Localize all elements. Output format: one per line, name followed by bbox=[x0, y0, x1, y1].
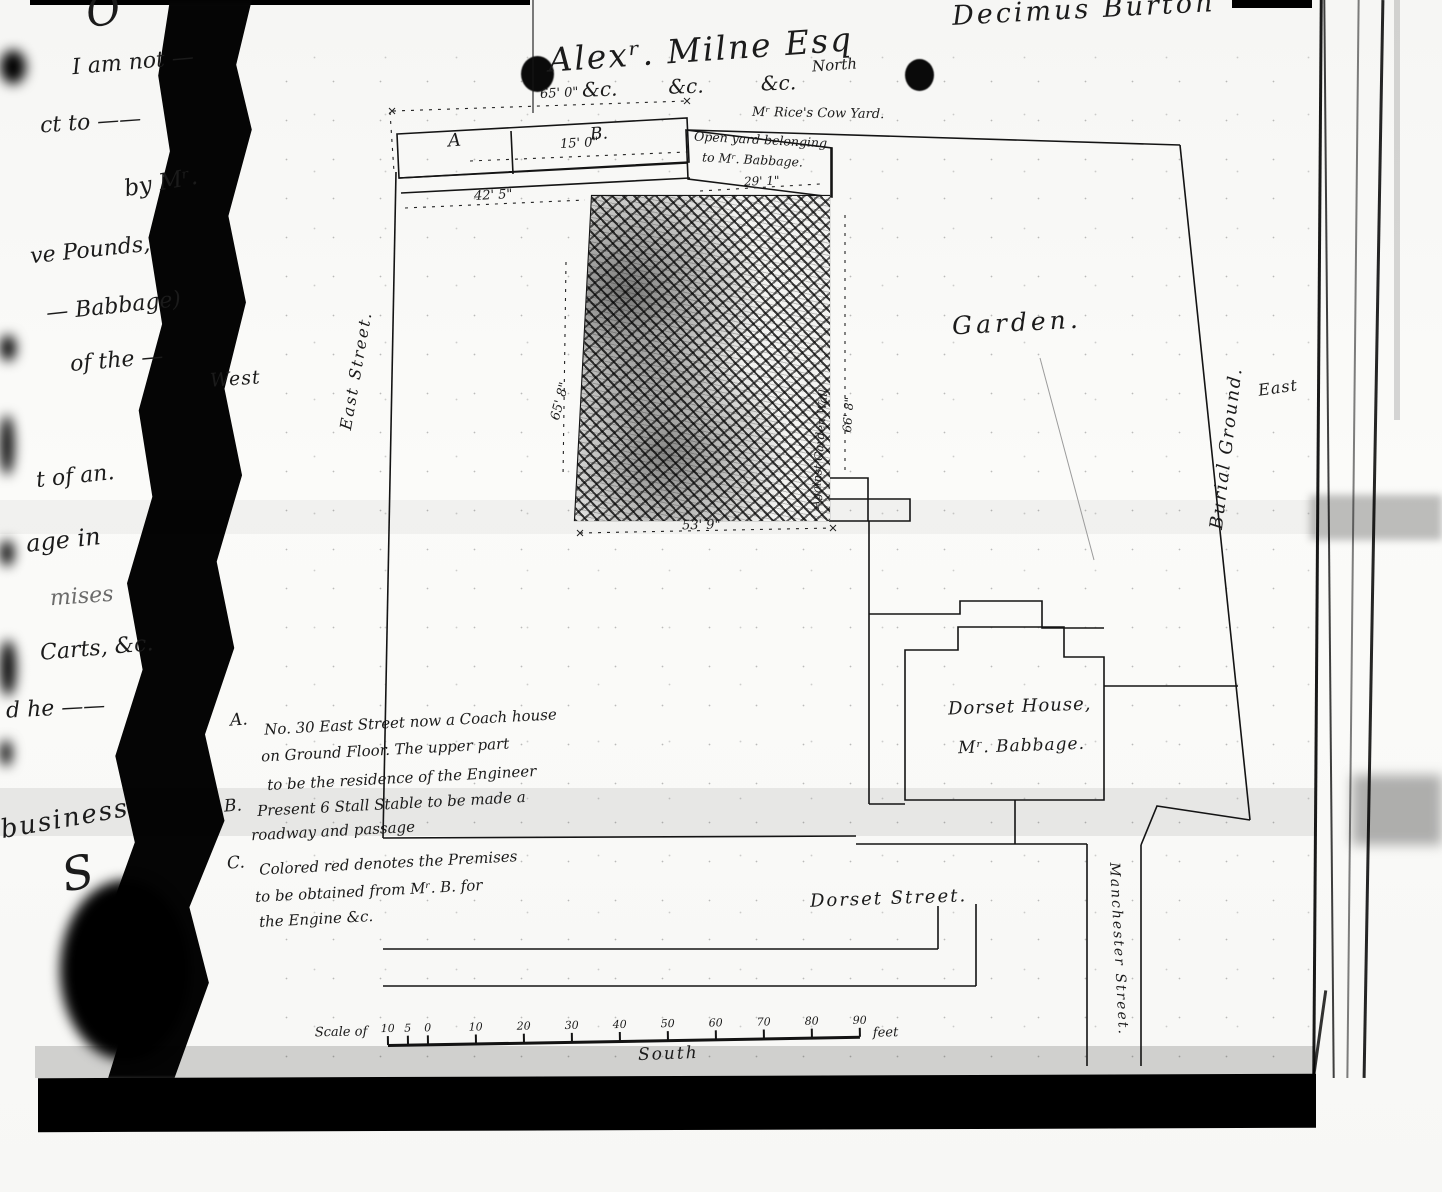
dim-stable-width-line bbox=[470, 152, 688, 161]
dorset-street-curbs bbox=[383, 904, 976, 986]
step-boxes bbox=[829, 478, 910, 521]
scale-tick-label: 60 bbox=[709, 1016, 723, 1029]
scale-tick-mark bbox=[475, 1035, 477, 1044]
scale-tick: 10 bbox=[379, 1022, 397, 1045]
scale-tick: 30 bbox=[563, 1019, 581, 1042]
letter-fragment: mises bbox=[49, 582, 114, 611]
scale-tick-mark bbox=[667, 1031, 669, 1040]
scale-tick-mark bbox=[763, 1029, 765, 1038]
scale-tick: 50 bbox=[659, 1017, 677, 1040]
letter-fragment: d he —— bbox=[5, 693, 105, 723]
block-a-label: A bbox=[447, 130, 461, 152]
scale-tick: 70 bbox=[755, 1015, 773, 1038]
scale-tick-label: 30 bbox=[565, 1019, 579, 1032]
dim-stable-width: 15' 0" bbox=[560, 135, 599, 152]
compass-south-label: South bbox=[638, 1043, 699, 1065]
compass-west-label: West bbox=[209, 366, 261, 391]
garden-west-edge bbox=[869, 521, 905, 804]
scale-tick-mark bbox=[427, 1035, 429, 1044]
scanned-plan-document: O Alexʳ. Milne Esq &c. &c. &c. North Dec… bbox=[0, 0, 1442, 1192]
note-a-letter: A. bbox=[229, 709, 248, 730]
scale-tick-label: 0 bbox=[424, 1021, 431, 1034]
scale-tick-mark bbox=[859, 1028, 861, 1037]
scale-tick: 40 bbox=[611, 1018, 629, 1041]
scale-tick-label: 40 bbox=[613, 1018, 627, 1031]
parcel-south-boundary bbox=[383, 836, 856, 838]
garden-crease-line bbox=[1040, 358, 1094, 560]
scale-tick-mark bbox=[387, 1036, 389, 1045]
scale-tick-mark bbox=[715, 1030, 717, 1039]
scale-tick-mark bbox=[407, 1036, 409, 1045]
scale-tick-label: 70 bbox=[757, 1015, 771, 1028]
scale-tick-label: 20 bbox=[517, 1020, 531, 1033]
scale-tick-mark bbox=[811, 1029, 813, 1038]
cow-yard-label: Mʳ Rice's Cow Yard. bbox=[752, 105, 885, 122]
compass-north-label: North bbox=[811, 54, 857, 75]
scale-tick-label: 10 bbox=[381, 1022, 395, 1035]
dim-small-left-line bbox=[390, 112, 394, 172]
frontage-strip-lines bbox=[399, 163, 690, 193]
scale-tick-label: 5 bbox=[404, 1022, 411, 1035]
west-boundary-east-street bbox=[383, 172, 396, 838]
scale-tick-mark bbox=[619, 1032, 621, 1041]
stable-blocks-outline bbox=[397, 118, 689, 178]
note-c-letter: C. bbox=[226, 852, 245, 873]
scale-tick-label: 90 bbox=[853, 1014, 867, 1027]
dim-parcel-width: 42' 5" bbox=[474, 187, 513, 204]
scale-tick-label: 80 bbox=[805, 1015, 819, 1028]
engine-house-hatched-block bbox=[575, 196, 830, 521]
scale-unit-label: feet bbox=[873, 1025, 899, 1040]
scale-tick-mark bbox=[523, 1034, 525, 1043]
garden-steps bbox=[869, 601, 1104, 628]
southeast-corner-lines bbox=[1141, 806, 1250, 845]
scale-tick: 20 bbox=[515, 1020, 533, 1043]
scale-bar: Scale of 10 5 0 10 20 30 40 50 60 70 80 … bbox=[315, 1007, 926, 1080]
dim-top-width-line bbox=[393, 101, 687, 111]
note-b-letter: B. bbox=[223, 795, 242, 816]
dim-open-yard-width: 29' 1" bbox=[744, 173, 780, 188]
scale-tick: 60 bbox=[707, 1016, 725, 1039]
scale-tick-label: 10 bbox=[469, 1020, 483, 1033]
scale-tick: 80 bbox=[803, 1014, 821, 1037]
scale-prefix: Scale of bbox=[315, 1024, 368, 1040]
dim-south-side: 53' 9" bbox=[682, 518, 721, 534]
scale-tick: 90 bbox=[851, 1014, 869, 1037]
dim-east-side: 66' 8" bbox=[840, 397, 856, 433]
scale-tick-label: 50 bbox=[661, 1017, 675, 1030]
scale-tick: 10 bbox=[467, 1020, 485, 1043]
dim-top-width: 65' 0" bbox=[540, 85, 579, 102]
scale-tick: 0 bbox=[419, 1021, 437, 1044]
dim-west-side-line bbox=[563, 262, 566, 478]
scale-tick-mark bbox=[571, 1033, 573, 1042]
scale-tick: 5 bbox=[399, 1022, 417, 1045]
